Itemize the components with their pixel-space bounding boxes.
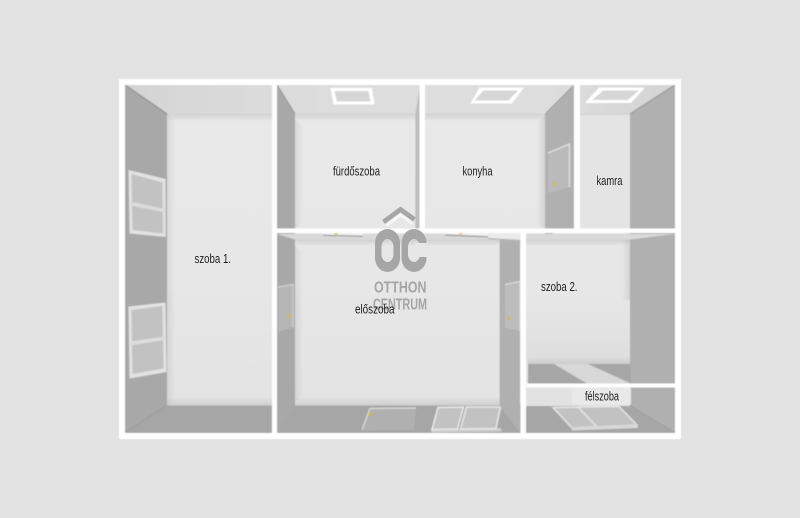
svg-text:fürdőszoba: fürdőszoba: [333, 164, 381, 179]
svg-text:szoba 2.: szoba 2.: [541, 279, 578, 294]
svg-text:félszoba: félszoba: [585, 389, 620, 404]
svg-text:konyha: konyha: [463, 164, 494, 179]
svg-text:szoba 1.: szoba 1.: [195, 251, 232, 266]
svg-text:OTTHON: OTTHON: [374, 280, 427, 297]
svg-text:kamra: kamra: [597, 173, 624, 188]
svg-text:előszoba: előszoba: [355, 302, 395, 317]
